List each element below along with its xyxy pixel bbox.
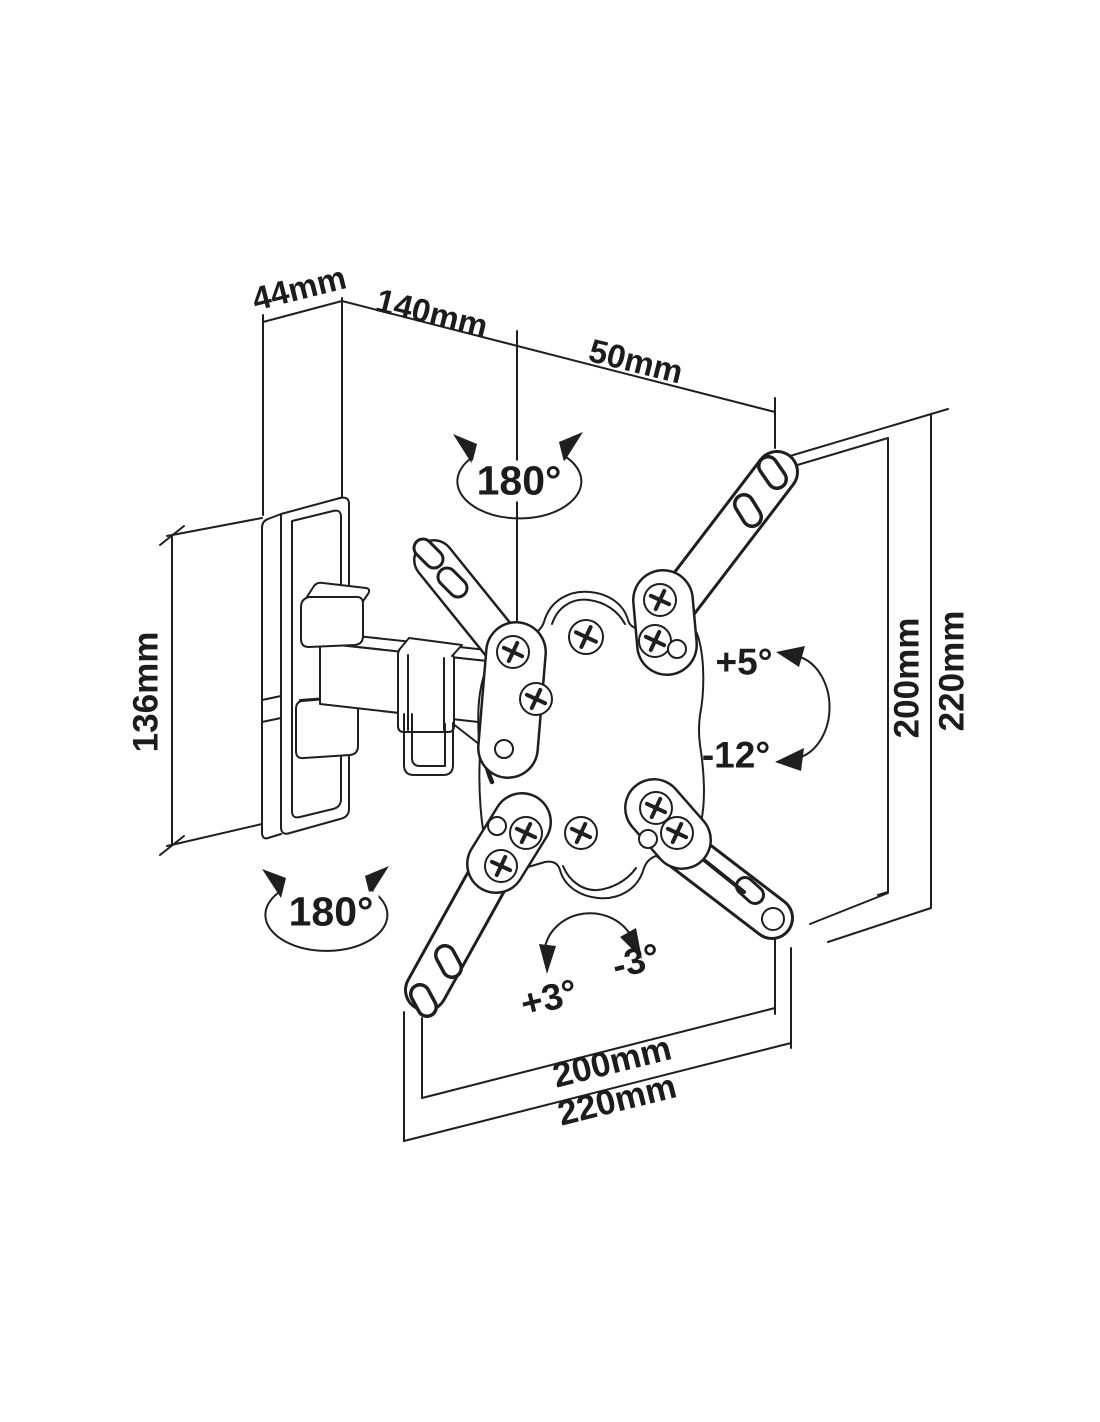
arrowhead-icon xyxy=(539,944,556,974)
dim-136mm-label: 136mm xyxy=(129,632,164,753)
angle-tilt-down-label: -12° xyxy=(702,737,770,774)
arm-clip xyxy=(398,638,462,732)
angle-180-top-label: 180° xyxy=(472,461,567,502)
arrowhead-icon xyxy=(262,869,286,898)
dim-right-220mm-label: 220mm xyxy=(935,611,970,732)
angle-180-bottom-label: 180° xyxy=(284,892,379,933)
angle-tilt-up-label: +5° xyxy=(716,644,773,681)
arrowhead-icon xyxy=(559,432,583,462)
dim-right-200mm-label: 200mm xyxy=(890,618,925,739)
hinge-upper-knuckle xyxy=(301,583,369,647)
arrowhead-icon xyxy=(776,646,805,667)
arrowhead-icon xyxy=(775,748,804,771)
technical-drawing-page: 44mm 140mm 50mm 136mm 200mm 220mm 200mm … xyxy=(0,0,1100,1422)
arrowhead-icon xyxy=(453,434,477,464)
